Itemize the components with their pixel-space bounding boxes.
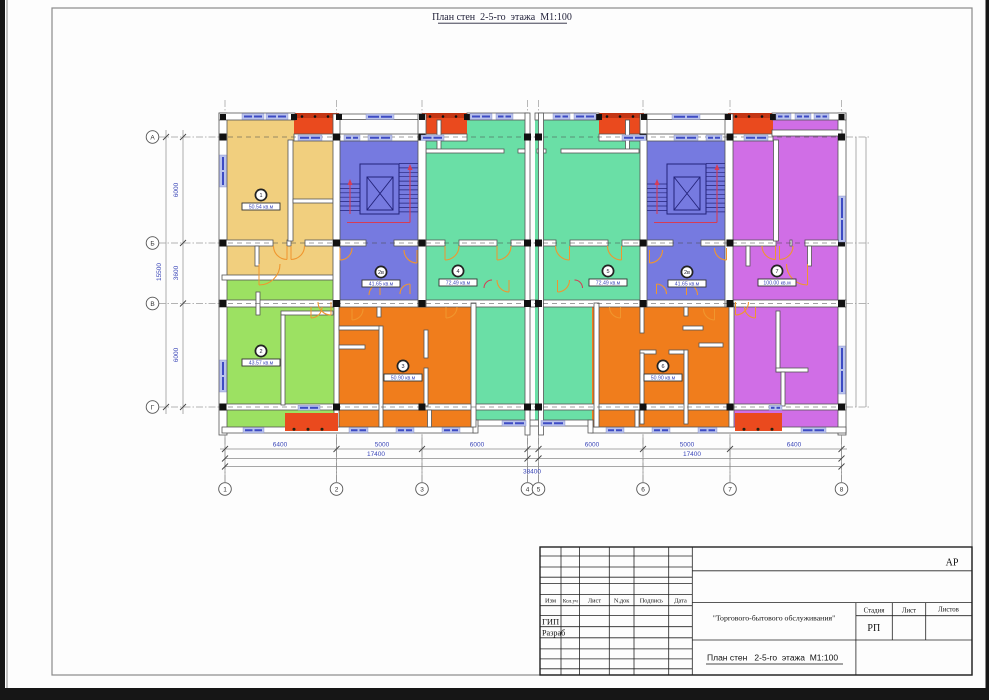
svg-text:4: 4 xyxy=(526,486,530,493)
svg-text:Лист: Лист xyxy=(588,598,601,605)
svg-text:6000: 6000 xyxy=(470,442,485,449)
svg-text:5: 5 xyxy=(537,486,541,493)
svg-text:АР: АР xyxy=(946,558,959,569)
svg-text:План стен 2-5-го этажа М1:: План стен 2-5-го этажа М1:100 xyxy=(707,653,838,663)
svg-text:100.00 кв.м: 100.00 кв.м xyxy=(763,281,791,287)
svg-text:1: 1 xyxy=(223,486,227,493)
svg-text:"Торгового-бытового обслуживан: "Торгового-бытового обслуживания" xyxy=(713,614,836,623)
svg-text:38400: 38400 xyxy=(523,469,541,476)
svg-text:Подпись: Подпись xyxy=(640,598,663,605)
svg-text:8: 8 xyxy=(840,486,844,493)
svg-text:5000: 5000 xyxy=(680,442,695,449)
svg-text:72.49 кв.м: 72.49 кв.м xyxy=(596,281,621,287)
svg-text:41.65 кв.м: 41.65 кв.м xyxy=(369,282,394,288)
svg-text:6400: 6400 xyxy=(787,442,802,449)
svg-text:6400: 6400 xyxy=(273,442,288,449)
svg-text:5000: 5000 xyxy=(375,442,390,449)
svg-text:7: 7 xyxy=(728,486,732,493)
svg-text:50.54 кв.м: 50.54 кв.м xyxy=(249,205,274,211)
svg-text:4: 4 xyxy=(456,269,459,275)
svg-text:3: 3 xyxy=(401,364,404,370)
svg-text:72.49 кв.м: 72.49 кв.м xyxy=(446,281,471,287)
svg-text:Г: Г xyxy=(151,404,155,411)
svg-text:2: 2 xyxy=(259,349,262,355)
svg-text:А: А xyxy=(150,134,155,141)
svg-text:2в: 2в xyxy=(378,270,384,276)
svg-text:Разраб: Разраб xyxy=(542,629,565,638)
svg-text:План стен 2-5-го этажа М1:1: План стен 2-5-го этажа М1:100 xyxy=(432,12,572,23)
svg-text:2: 2 xyxy=(335,486,339,493)
svg-text:Б: Б xyxy=(150,240,154,247)
svg-text:17400: 17400 xyxy=(367,451,385,458)
svg-text:РП: РП xyxy=(867,623,880,634)
svg-text:N.док: N.док xyxy=(614,598,630,605)
svg-text:Стадия: Стадия xyxy=(864,607,885,614)
svg-text:17400: 17400 xyxy=(683,451,701,458)
svg-text:2в: 2в xyxy=(684,270,690,276)
svg-text:15500: 15500 xyxy=(156,263,163,281)
svg-text:50.90 кв.м: 50.90 кв.м xyxy=(391,376,416,382)
svg-text:6: 6 xyxy=(661,364,664,370)
svg-text:Лист: Лист xyxy=(902,607,916,614)
svg-text:Кол.уч: Кол.уч xyxy=(563,599,578,605)
svg-text:41.65 кв.м: 41.65 кв.м xyxy=(675,282,700,288)
svg-text:5: 5 xyxy=(606,269,609,275)
svg-text:В: В xyxy=(150,301,154,308)
svg-text:50.90 кв.м: 50.90 кв.м xyxy=(651,376,676,382)
svg-text:7: 7 xyxy=(775,269,778,275)
svg-text:Изм: Изм xyxy=(545,598,556,605)
svg-text:3600: 3600 xyxy=(173,265,180,280)
svg-text:Листов: Листов xyxy=(938,607,959,614)
svg-text:1: 1 xyxy=(259,193,262,199)
svg-text:6000: 6000 xyxy=(173,347,180,362)
svg-text:43.57 кв.м: 43.57 кв.м xyxy=(249,361,274,367)
svg-text:Дата: Дата xyxy=(674,598,687,605)
svg-text:6000: 6000 xyxy=(173,182,180,197)
svg-text:6000: 6000 xyxy=(585,442,600,449)
svg-text:ГИП: ГИП xyxy=(542,617,559,627)
svg-text:3: 3 xyxy=(420,486,424,493)
svg-text:6: 6 xyxy=(641,486,645,493)
